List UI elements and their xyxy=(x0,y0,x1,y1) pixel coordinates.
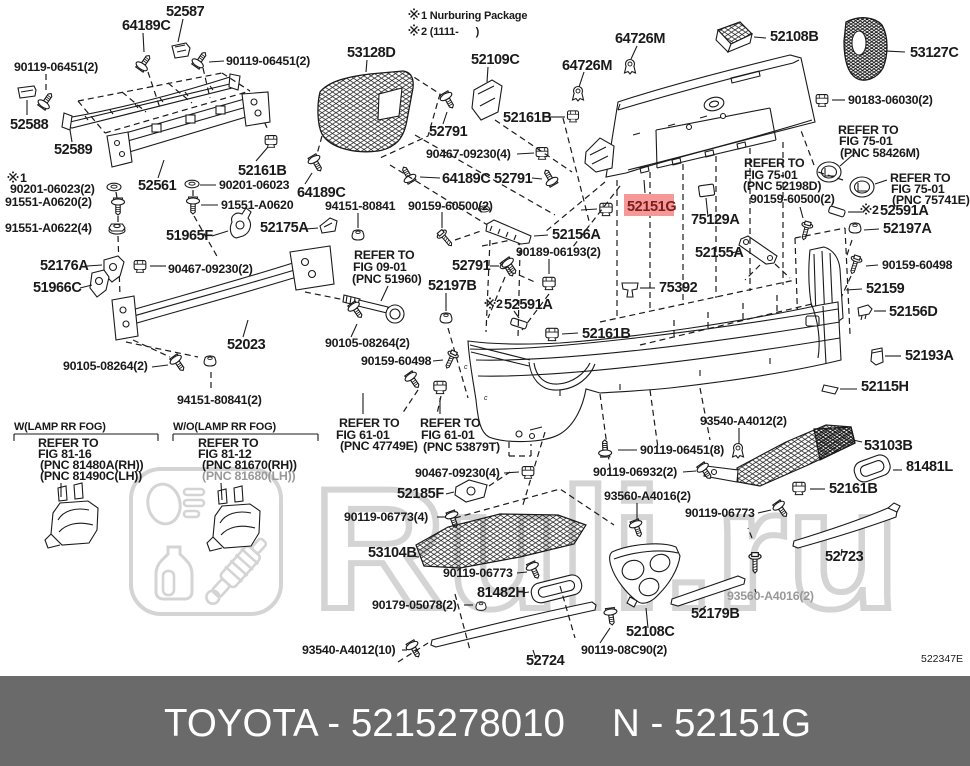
svg-text:2 (1111- ): 2 (1111- ) xyxy=(421,26,480,38)
svg-text:90467-09230(2): 90467-09230(2) xyxy=(168,262,253,276)
svg-text:52791: 52791 xyxy=(494,171,533,187)
svg-text:52108C: 52108C xyxy=(626,624,675,640)
svg-text:52561: 52561 xyxy=(138,178,177,194)
svg-text:52108B: 52108B xyxy=(770,29,818,45)
svg-text:90159-60498: 90159-60498 xyxy=(361,354,432,368)
svg-text:52185F: 52185F xyxy=(397,486,444,502)
svg-text:93540-A4012(10): 93540-A4012(10) xyxy=(302,643,396,657)
svg-text:51965F: 51965F xyxy=(166,228,213,244)
svg-text:52179B: 52179B xyxy=(691,606,739,622)
svg-text:52589: 52589 xyxy=(54,142,93,158)
svg-text:c: c xyxy=(464,364,468,371)
svg-text:53128D: 53128D xyxy=(347,45,395,61)
svg-text:64189C: 64189C xyxy=(122,18,171,34)
svg-text:52791: 52791 xyxy=(429,124,468,140)
svg-text:90201-06023(2): 90201-06023(2) xyxy=(10,182,95,196)
svg-text:90467-09230(4): 90467-09230(4) xyxy=(426,147,511,161)
svg-text:(PNC 51960): (PNC 51960) xyxy=(352,272,422,286)
svg-text:90201-06023: 90201-06023 xyxy=(219,178,290,192)
svg-text:(PNC 81680(LH)): (PNC 81680(LH)) xyxy=(202,469,295,483)
svg-text:90119-06773: 90119-06773 xyxy=(443,566,513,580)
svg-text:90159-60500(2): 90159-60500(2) xyxy=(408,199,493,213)
svg-text:52155A: 52155A xyxy=(695,245,744,261)
svg-text:c: c xyxy=(484,395,488,402)
svg-text:81481L: 81481L xyxy=(906,459,953,475)
svg-text:53104B: 53104B xyxy=(368,545,416,561)
svg-text:90119-06773(4): 90119-06773(4) xyxy=(344,510,428,524)
svg-text:52023: 52023 xyxy=(227,337,266,353)
svg-text:90119-06932(2): 90119-06932(2) xyxy=(593,465,677,479)
svg-text:93540-A4012(2): 93540-A4012(2) xyxy=(700,414,787,428)
svg-text:94151-80841(2): 94151-80841(2) xyxy=(177,393,262,407)
svg-text:52109C: 52109C xyxy=(471,52,520,68)
svg-text:52723: 52723 xyxy=(825,549,864,565)
svg-text:52159: 52159 xyxy=(866,281,905,297)
svg-text:2: 2 xyxy=(872,203,879,217)
svg-text:81482H: 81482H xyxy=(477,585,525,601)
svg-text:522347E: 522347E xyxy=(921,653,963,665)
svg-text:52161B: 52161B xyxy=(582,326,630,342)
svg-text:90183-06030(2): 90183-06030(2) xyxy=(848,93,933,107)
svg-text:75129A: 75129A xyxy=(691,212,740,228)
svg-text:90159-60500(2): 90159-60500(2) xyxy=(750,192,835,206)
svg-text:64726M: 64726M xyxy=(615,31,665,47)
svg-text:(PNC 58426M): (PNC 58426M) xyxy=(840,146,920,160)
svg-text:52156D: 52156D xyxy=(889,304,937,320)
svg-text:64189C: 64189C xyxy=(442,171,491,187)
svg-text:91551-A0620(2): 91551-A0620(2) xyxy=(5,195,92,209)
svg-text:52193A: 52193A xyxy=(905,348,954,364)
svg-text:52591A: 52591A xyxy=(880,203,929,219)
svg-text:52588: 52588 xyxy=(10,117,49,133)
svg-text:91551-A0620: 91551-A0620 xyxy=(221,198,294,212)
svg-text:52176A: 52176A xyxy=(40,258,89,274)
svg-text:TOYOTA - 5215278010: TOYOTA - 5215278010 xyxy=(164,702,565,745)
svg-text:52161B: 52161B xyxy=(503,110,551,126)
svg-text:90105-08264(2): 90105-08264(2) xyxy=(325,336,410,350)
svg-text:52115H: 52115H xyxy=(861,379,909,395)
svg-text:52175A: 52175A xyxy=(260,220,309,236)
svg-text:90119-06773: 90119-06773 xyxy=(685,506,755,520)
svg-text:91551-A0622(4): 91551-A0622(4) xyxy=(5,221,92,235)
svg-text:(PNC 53879T): (PNC 53879T) xyxy=(423,440,500,454)
svg-text:N - 52151G: N - 52151G xyxy=(612,702,811,745)
svg-text:52197B: 52197B xyxy=(428,278,476,294)
svg-text:52587: 52587 xyxy=(166,4,205,20)
svg-text:94151-80841: 94151-80841 xyxy=(325,199,396,213)
svg-text:52791: 52791 xyxy=(452,258,491,274)
svg-text:93560-A4016(2): 93560-A4016(2) xyxy=(727,589,814,603)
svg-text:52151G: 52151G xyxy=(627,199,676,215)
svg-text:52197A: 52197A xyxy=(883,221,932,237)
svg-text:90179-05078(2): 90179-05078(2) xyxy=(372,598,457,612)
svg-text:53103B: 53103B xyxy=(864,438,912,454)
svg-text:90105-08264(2): 90105-08264(2) xyxy=(63,359,148,373)
svg-text:1 Nurburing Package: 1 Nurburing Package xyxy=(421,10,527,22)
svg-text:52156A: 52156A xyxy=(552,227,601,243)
svg-text:52591A: 52591A xyxy=(504,297,553,313)
svg-text:(PNC 52198D): (PNC 52198D) xyxy=(743,179,821,193)
svg-text:90119-06451(2): 90119-06451(2) xyxy=(14,60,98,74)
svg-text:64726M: 64726M xyxy=(562,58,612,74)
svg-text:(PNC 47749E): (PNC 47749E) xyxy=(340,439,418,453)
svg-text:75392: 75392 xyxy=(659,280,698,296)
svg-text:90189-06193(2): 90189-06193(2) xyxy=(516,245,601,259)
svg-text:52724: 52724 xyxy=(526,653,565,669)
svg-text:90119-06451(8): 90119-06451(8) xyxy=(640,443,724,457)
svg-text:52161B: 52161B xyxy=(829,481,877,497)
svg-text:53127C: 53127C xyxy=(910,45,959,61)
svg-text:2: 2 xyxy=(496,297,503,311)
svg-text:90119-06451(2): 90119-06451(2) xyxy=(226,54,310,68)
svg-text:90467-09230(4): 90467-09230(4) xyxy=(415,466,500,480)
svg-text:90159-60498: 90159-60498 xyxy=(882,258,953,272)
svg-text:W/O(LAMP RR FOG): W/O(LAMP RR FOG) xyxy=(173,421,276,433)
svg-text:90119-08C90(2): 90119-08C90(2) xyxy=(581,643,667,657)
svg-text:52161B: 52161B xyxy=(238,163,286,179)
svg-text:W(LAMP RR FOG): W(LAMP RR FOG) xyxy=(14,421,106,433)
svg-text:93560-A4016(2): 93560-A4016(2) xyxy=(604,489,691,503)
svg-text:51966C: 51966C xyxy=(33,280,82,296)
svg-text:(PNC 81490C(LH)): (PNC 81490C(LH)) xyxy=(40,469,142,483)
